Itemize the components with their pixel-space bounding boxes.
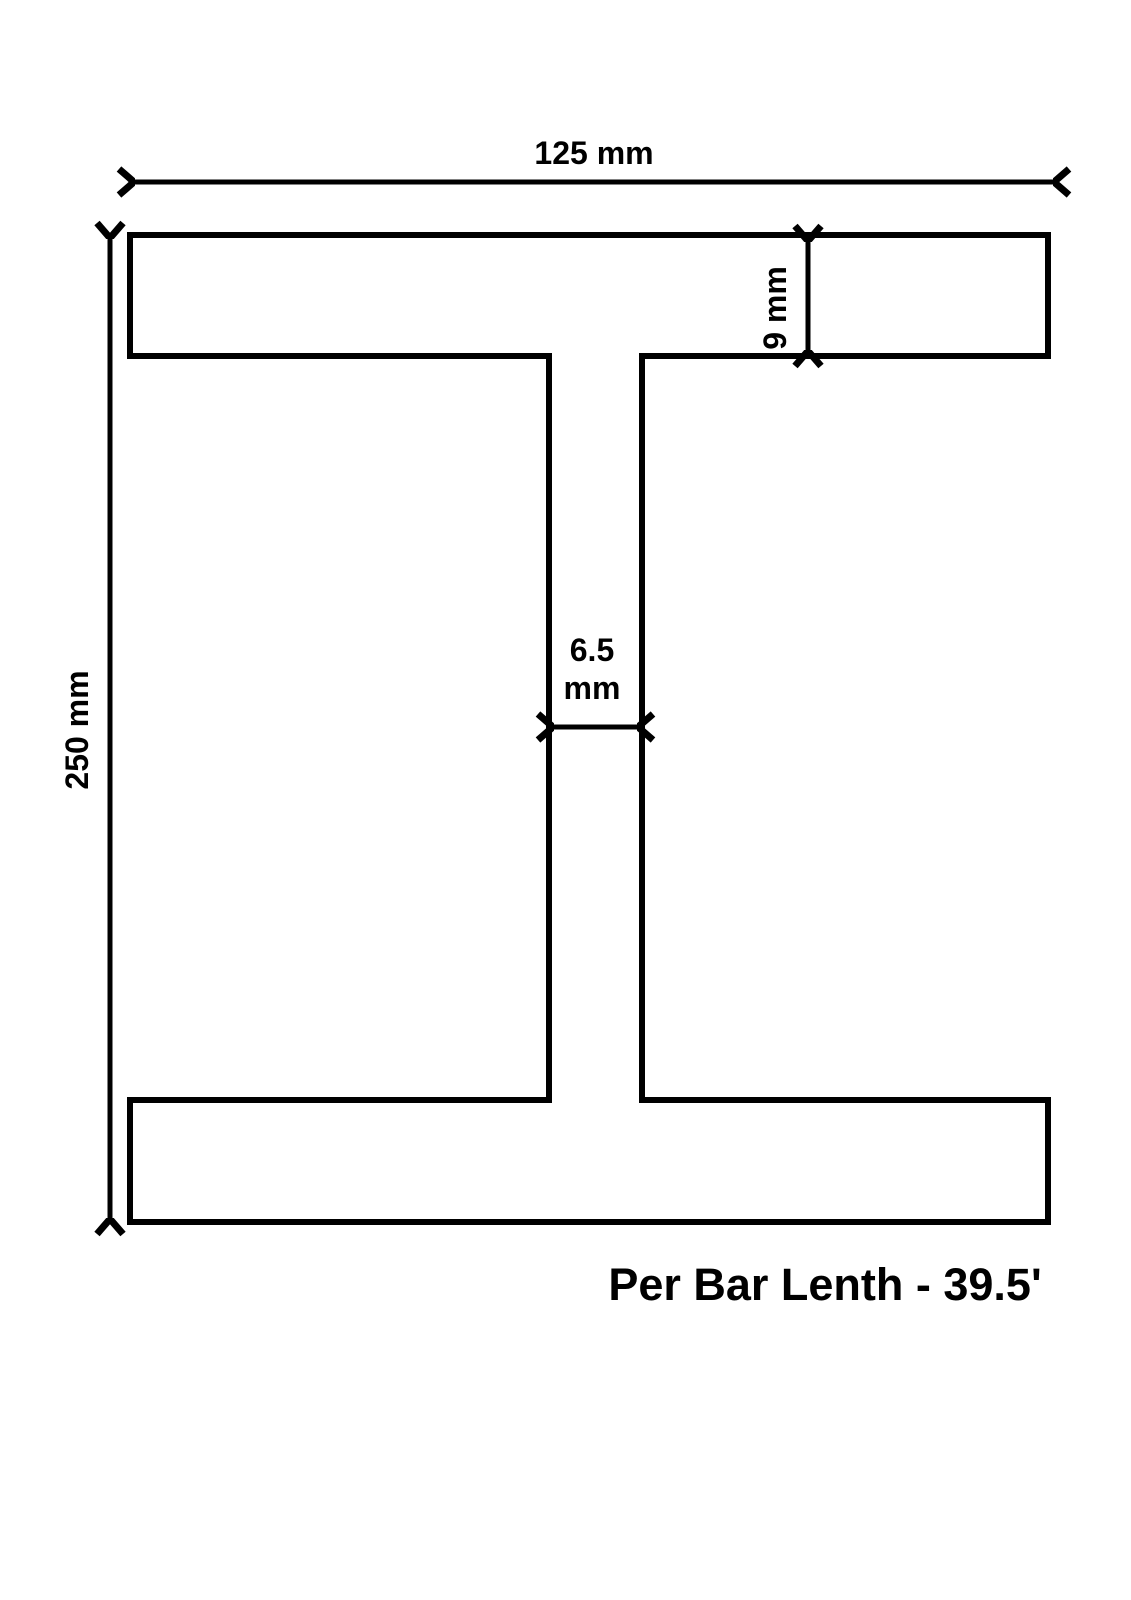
- ibeam-diagram-canvas: 125 mm 250 mm 9 mm 6.5 mm Per Bar Lenth …: [0, 0, 1131, 1600]
- flange-thickness-label: 9 mm: [757, 266, 793, 350]
- web-thickness-label-value: 6.5: [570, 632, 614, 668]
- web-thickness-label-unit: mm: [564, 670, 621, 706]
- drawing-page: 125 mm 250 mm 9 mm 6.5 mm Per Bar Lenth …: [0, 0, 1131, 1600]
- width-dimension-label: 125 mm: [534, 135, 653, 171]
- height-dimension-label: 250 mm: [59, 670, 95, 789]
- per-bar-length-label: Per Bar Lenth - 39.5': [608, 1259, 1041, 1310]
